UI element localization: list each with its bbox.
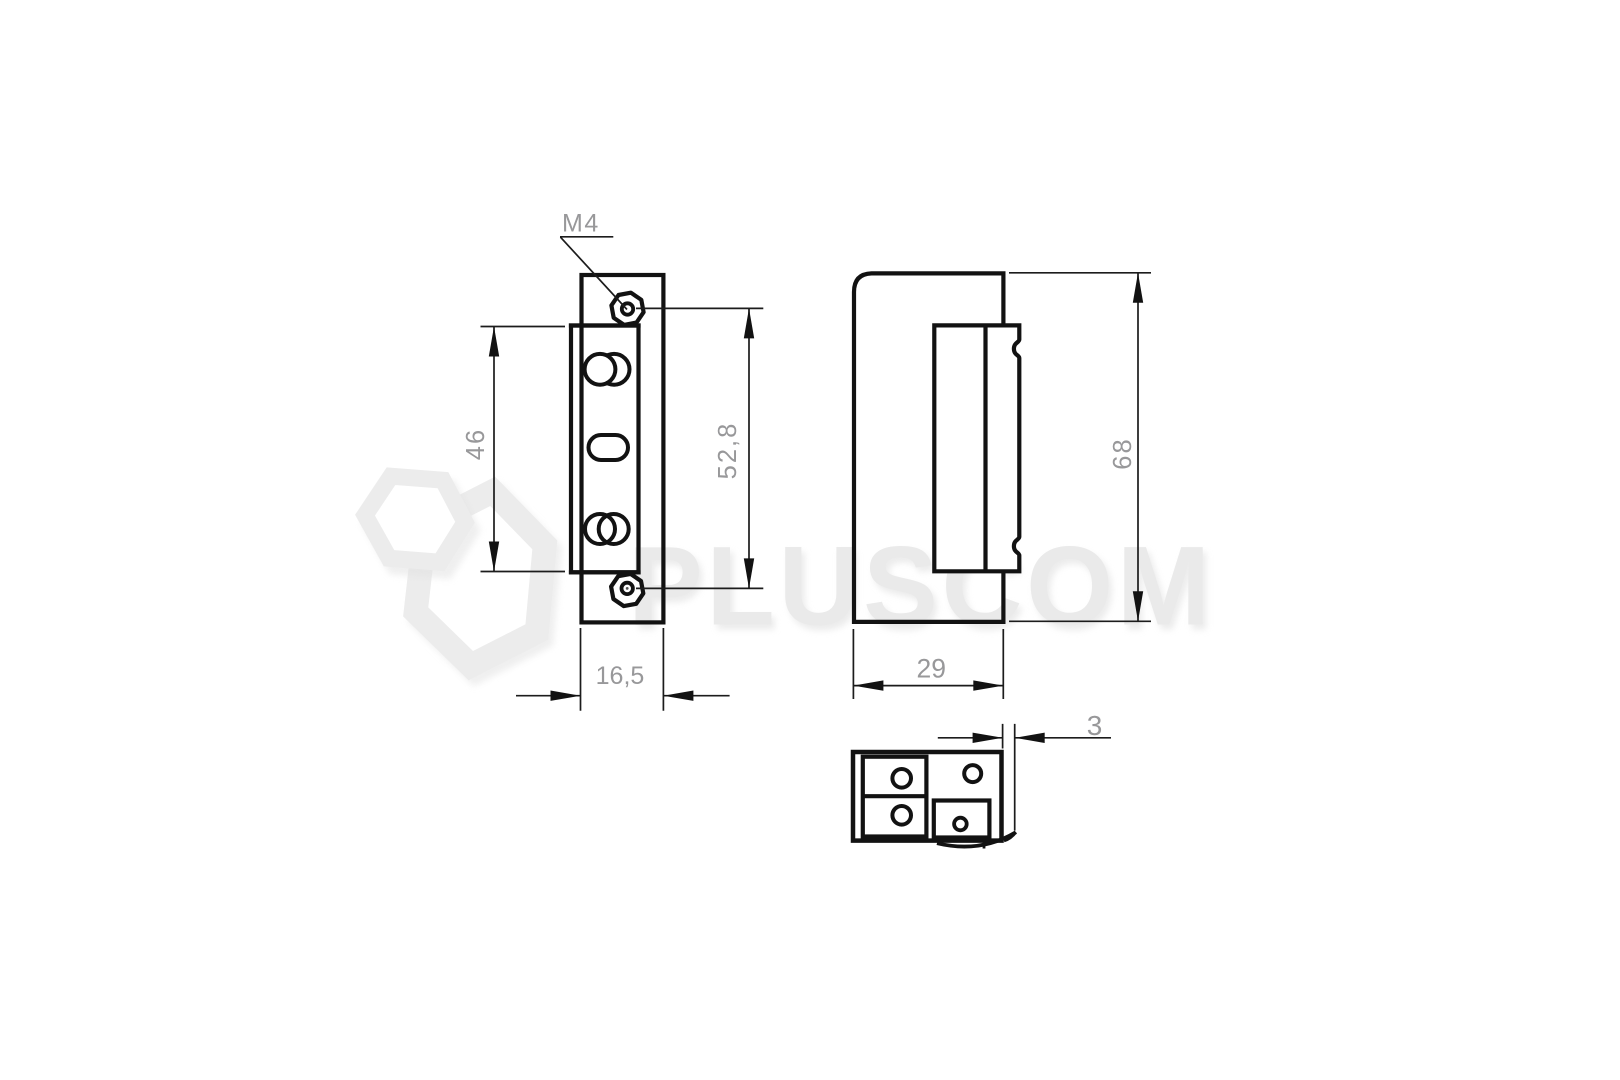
svg-text:52,8: 52,8 (714, 422, 742, 480)
svg-text:46: 46 (462, 428, 490, 460)
svg-text:3: 3 (1087, 710, 1103, 741)
svg-text:29: 29 (917, 654, 946, 684)
svg-text:PLUSCOM: PLUSCOM (628, 524, 1214, 649)
svg-text:68: 68 (1109, 437, 1137, 469)
svg-text:M4: M4 (562, 210, 600, 238)
svg-text:16,5: 16,5 (596, 662, 645, 690)
